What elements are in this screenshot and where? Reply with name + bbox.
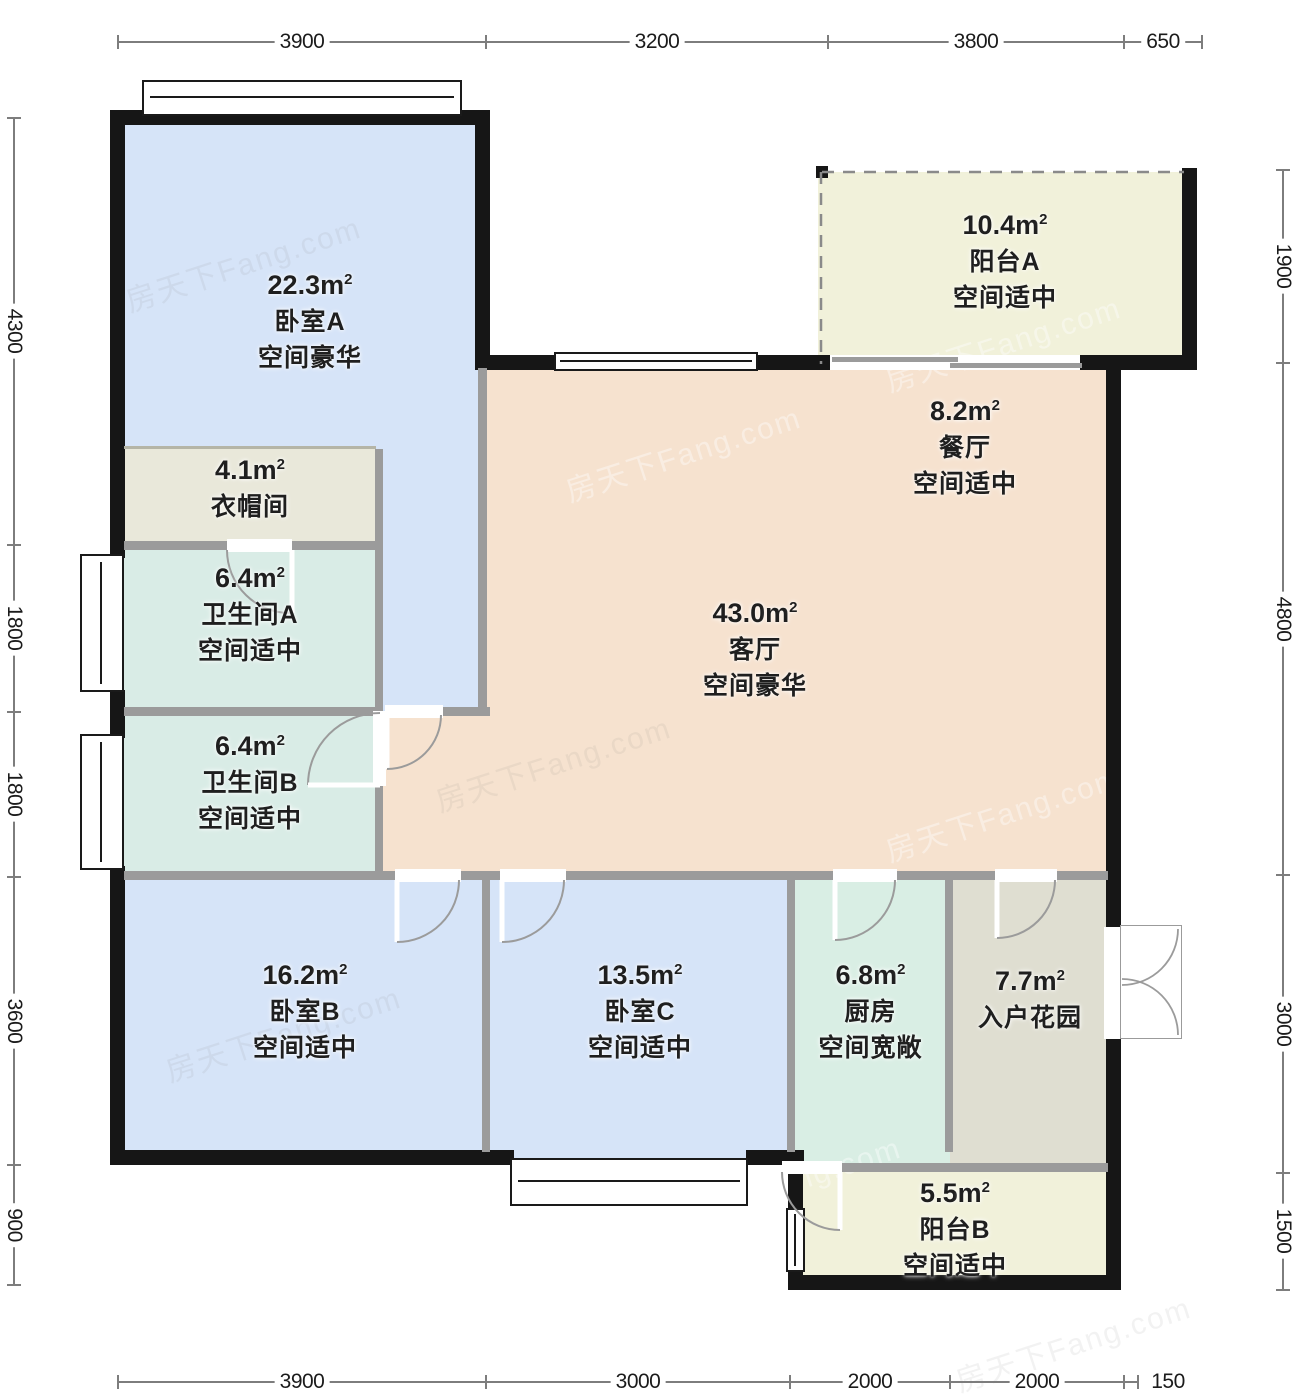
wall	[1182, 168, 1197, 368]
dim-label: 650	[1141, 30, 1185, 54]
room-area: 5.5m2	[790, 1180, 1120, 1207]
wall	[1076, 355, 1197, 370]
entry-double-door	[1120, 925, 1182, 1039]
door-opening-garden	[995, 869, 1057, 882]
wall-interior	[375, 449, 383, 711]
closet-boundary	[124, 446, 376, 449]
room-label-balcony-a: 10.4m2 阳台A 空间适中	[830, 212, 1180, 311]
dim-label: 3900	[275, 1370, 330, 1394]
room-area: 6.8m2	[783, 962, 958, 989]
room-label-bedroom-b: 16.2m2 卧室B 空间适中	[140, 962, 470, 1061]
wall	[110, 866, 125, 1165]
room-area: 6.4m2	[124, 733, 376, 760]
room-label-garden: 7.7m2 入户花园	[945, 968, 1115, 1031]
window-mullion	[100, 562, 102, 684]
room-label-kitchen: 6.8m2 厨房 空间宽敞	[783, 962, 958, 1061]
dim-label: 1800	[2, 601, 26, 656]
bay-window-bedroom-c	[510, 1158, 748, 1206]
dim-label: 1500	[1271, 1204, 1295, 1259]
door-opening-bedroom-a	[385, 705, 443, 718]
door-opening-balcony-b	[782, 1161, 842, 1174]
wall-interior	[441, 707, 490, 716]
bay-window-bathroom-a	[80, 554, 124, 692]
dim-label: 4300	[2, 304, 26, 359]
door-opening-kitchen	[833, 869, 897, 882]
dim-label: 1900	[1271, 239, 1295, 294]
room-area: 10.4m2	[830, 212, 1180, 239]
dim-label: 3200	[630, 30, 685, 54]
window-mullion	[150, 96, 454, 98]
sliding-door-panel	[950, 363, 1082, 368]
room-area: 4.1m2	[124, 457, 376, 484]
dim-label: 2000	[843, 1370, 898, 1394]
dim-label: 900	[2, 1203, 26, 1247]
room-area: 43.0m2	[580, 600, 930, 627]
dim-label: 3000	[611, 1370, 666, 1394]
wall	[110, 110, 125, 558]
room-area: 7.7m2	[945, 968, 1115, 995]
door-opening-bedroom-c	[500, 869, 566, 882]
wall	[110, 690, 125, 738]
window-mullion	[100, 742, 102, 862]
room-label-closet: 4.1m2 衣帽间	[124, 457, 376, 520]
wall	[755, 355, 835, 370]
wall	[475, 110, 490, 370]
room-label-dining: 8.2m2 餐厅 空间适中	[790, 398, 1140, 497]
dim-label: 4800	[1271, 592, 1295, 647]
door-opening-bedroom-b	[395, 869, 461, 882]
wall-interior	[124, 707, 382, 716]
sliding-door-panel	[832, 357, 958, 362]
door-opening-bathroom-a	[227, 539, 292, 552]
dim-label: 150	[1146, 1370, 1190, 1394]
wall-interior	[124, 871, 1108, 880]
wall	[110, 1150, 514, 1165]
floor-plan: 房天下Fang.com 房天下Fang.com 房天下Fang.com 房天下F…	[0, 0, 1314, 1400]
dim-label: 3600	[2, 994, 26, 1049]
room-area: 16.2m2	[140, 962, 470, 989]
room-label-bathroom-b: 6.4m2 卫生间B 空间适中	[124, 733, 376, 832]
wall-interior	[375, 784, 383, 874]
wall-interior	[478, 368, 487, 713]
room-area: 8.2m2	[790, 398, 1140, 425]
room-label-balcony-b: 5.5m2 阳台B 空间适中	[790, 1180, 1120, 1279]
dim-label: 2000	[1010, 1370, 1065, 1394]
dim-label: 3900	[275, 30, 330, 54]
room-label-bathroom-a: 6.4m2 卫生间A 空间适中	[124, 565, 376, 664]
wall	[816, 166, 828, 178]
dim-label: 3800	[949, 30, 1004, 54]
room-label-bedroom-c: 13.5m2 卧室C 空间适中	[480, 962, 800, 1061]
bay-window-bathroom-b	[80, 734, 124, 870]
bay-window-bedroom-a	[142, 80, 462, 116]
dim-label: 3000	[1271, 997, 1295, 1052]
room-area: 13.5m2	[480, 962, 800, 989]
dim-label: 1800	[2, 767, 26, 822]
wall	[475, 355, 560, 370]
room-label-living: 43.0m2 客厅 空间豪华	[580, 600, 930, 699]
room-area: 6.4m2	[124, 565, 376, 592]
window-mullion	[518, 1180, 740, 1182]
room-label-bedroom-a: 22.3m2 卧室A 空间豪华	[152, 272, 468, 371]
room-area: 22.3m2	[152, 272, 468, 299]
window-mullion	[560, 360, 752, 362]
